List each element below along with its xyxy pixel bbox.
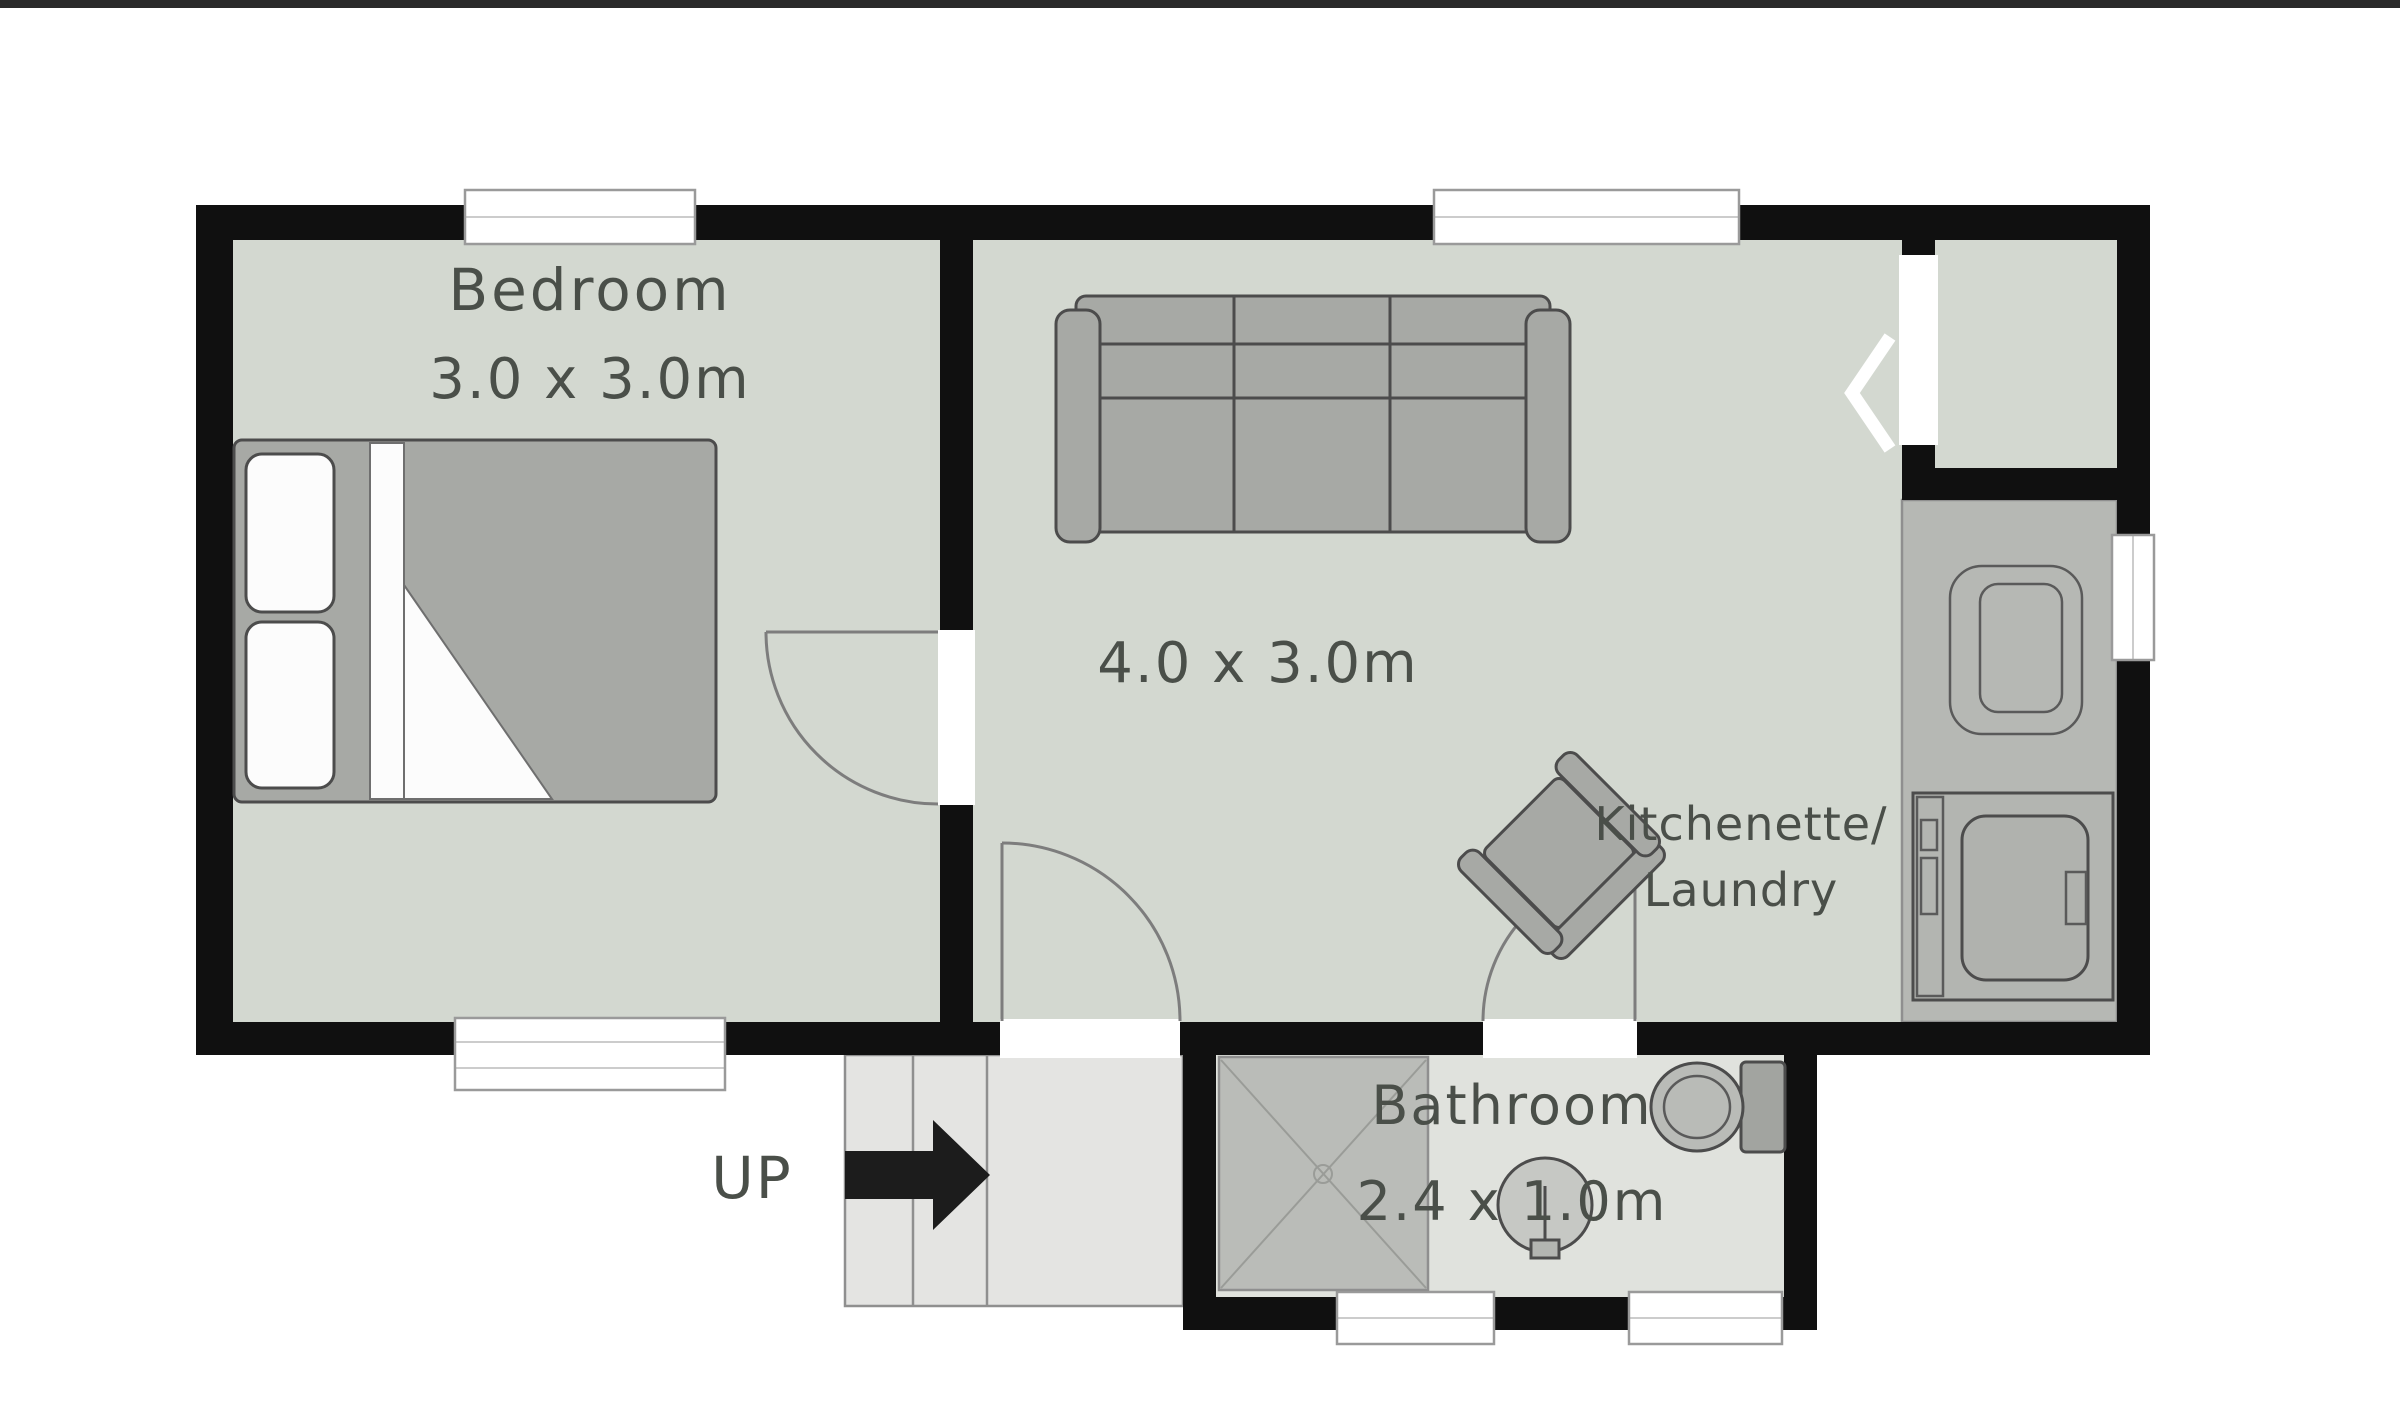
bedroom-dims: 3.0 x 3.0m	[429, 347, 750, 412]
bathroom-door-opening	[1483, 1019, 1637, 1058]
wall-entry-alcove-bottom	[1902, 468, 2150, 500]
sofa-body	[1076, 296, 1550, 532]
floor-plan-drawing: Bedroom 3.0 x 3.0m 4.0 x 3.0m Kitchenett…	[0, 0, 2400, 1413]
bed-icon	[234, 440, 716, 802]
wall-left	[196, 205, 233, 1055]
stairs-up-label: UP	[711, 1144, 792, 1212]
bedroom-label: Bedroom	[448, 256, 731, 324]
toilet-cistern	[1741, 1062, 1785, 1152]
window-bathroom-bottom-right	[1629, 1292, 1782, 1344]
sofa-armrest	[1056, 310, 1100, 542]
washer-door	[1962, 816, 2088, 980]
window-bedroom-bottom	[455, 1018, 725, 1090]
bed-sheet-band	[370, 443, 404, 799]
stairs-door-opening	[1000, 1019, 1180, 1058]
kitchenette-label-line2: Laundry	[1644, 863, 1838, 917]
wall-bathroom-left	[1183, 1055, 1216, 1330]
bathroom-dims: 2.4 x 1.0m	[1357, 1170, 1668, 1233]
window-bathroom-bottom-left	[1337, 1292, 1494, 1344]
window-living-top	[1434, 190, 1739, 244]
top-edge-strip	[0, 0, 2400, 8]
wall-bathroom-right	[1784, 1055, 1817, 1330]
washing-machine-icon	[1913, 793, 2113, 1000]
bedroom-door-opening	[938, 630, 975, 805]
toilet-icon	[1651, 1062, 1785, 1152]
basin-tap	[1531, 1240, 1559, 1258]
living-dims: 4.0 x 3.0m	[1097, 631, 1418, 696]
bathroom-label: Bathroom	[1371, 1074, 1652, 1137]
arrow-shaft	[845, 1151, 933, 1199]
window-kitchenette-right	[2112, 535, 2154, 660]
window-icon	[455, 1018, 725, 1090]
sofa-icon	[1056, 296, 1570, 542]
pillow	[246, 622, 334, 788]
entry-alcove-opening	[1899, 255, 1938, 445]
sofa-armrest	[1526, 310, 1570, 542]
pillow	[246, 454, 334, 612]
kitchenette-label-line1: Kitchenette/	[1594, 797, 1887, 851]
window-bedroom-top	[465, 190, 695, 244]
floor-plan-canvas: Bedroom 3.0 x 3.0m 4.0 x 3.0m Kitchenett…	[0, 0, 2400, 1413]
